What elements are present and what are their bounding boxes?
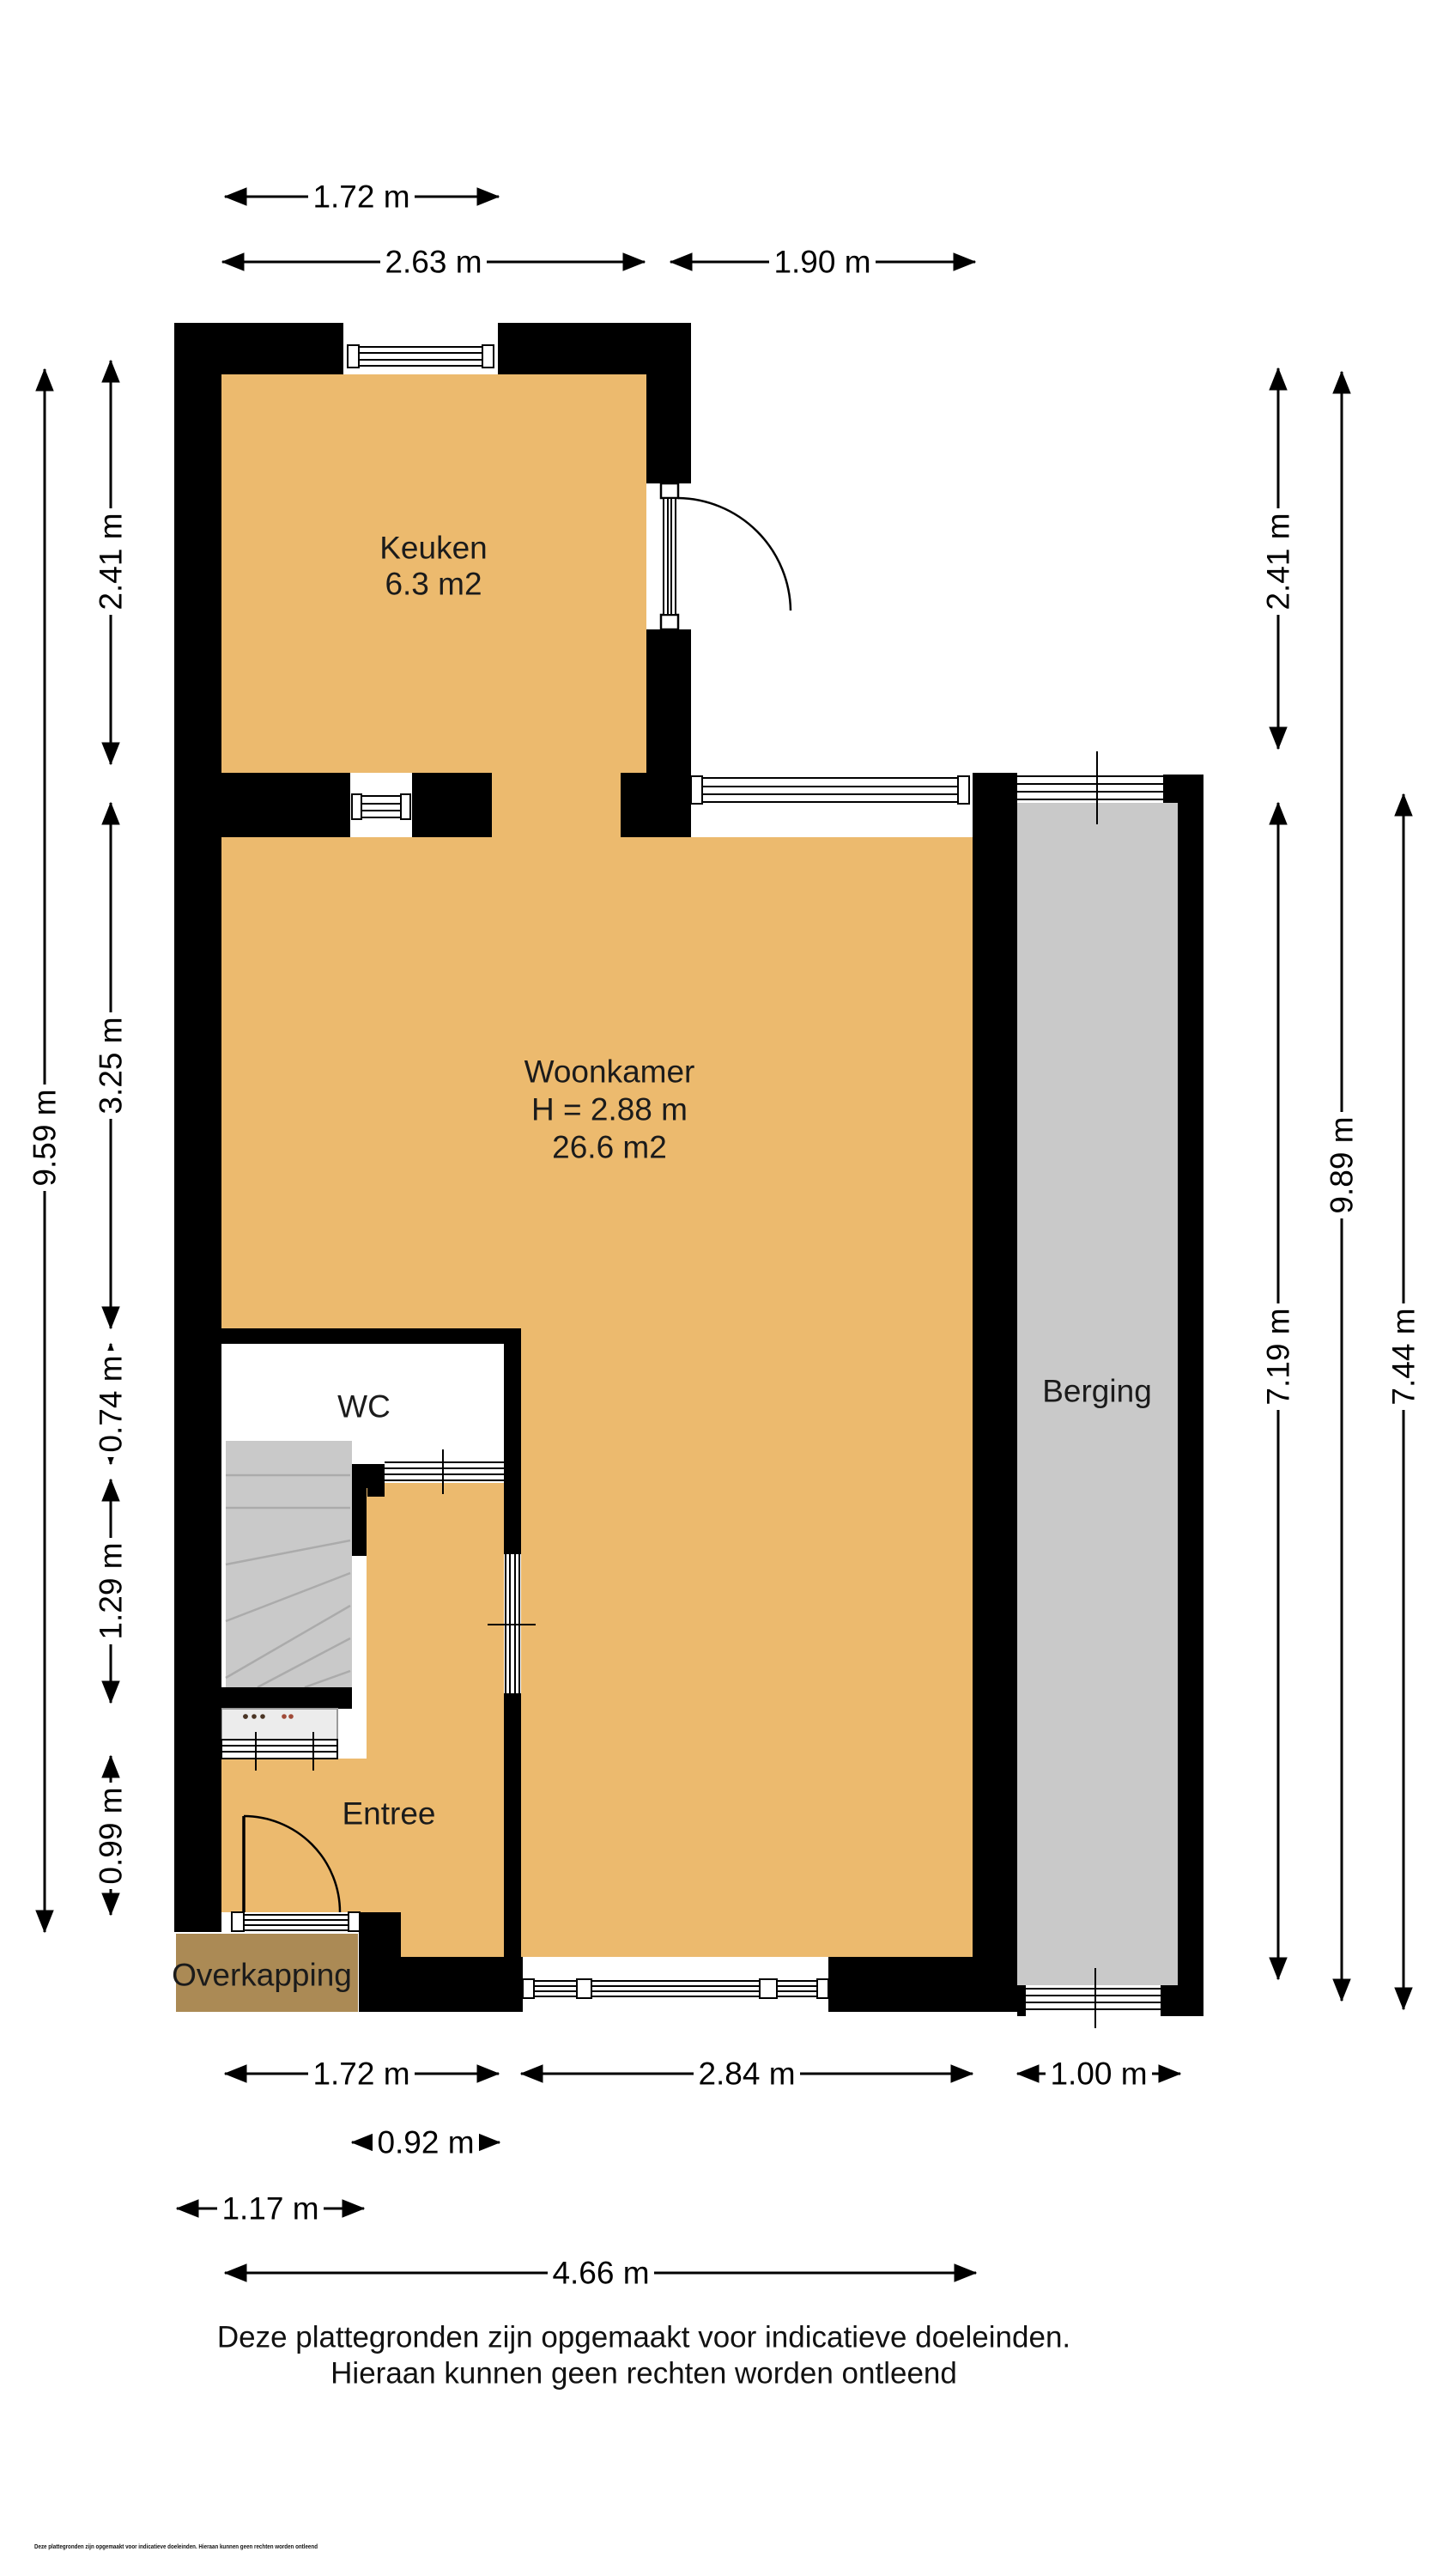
divider-window	[350, 773, 412, 837]
dim-left-total: 9.59 m	[27, 369, 63, 1932]
svg-text:7.44 m: 7.44 m	[1386, 1308, 1422, 1405]
keuken-door-swing-arc	[678, 498, 791, 611]
wall-top-left	[174, 323, 343, 374]
floorplan-svg: Keuken 6.3 m2 Woonkamer H = 2.88 m 26.6 …	[0, 0, 1449, 2576]
berging-label: Berging	[1042, 1374, 1152, 1409]
woonkamer-label: Woonkamer	[524, 1054, 695, 1090]
wall-woonkamer-berging	[973, 773, 1017, 2012]
wall-berging-right	[1178, 775, 1203, 2016]
dim-top-2: 2.63 m	[222, 244, 645, 280]
woonkamer-floor-lower	[521, 1328, 973, 1957]
svg-text:0.92 m: 0.92 m	[377, 2125, 474, 2160]
svg-text:3.25 m: 3.25 m	[94, 1017, 129, 1114]
disclaimer-line2: Hieraan kunnen geen rechten worden ontle…	[330, 2357, 957, 2391]
woonkamer-bottom-window	[523, 1957, 828, 2012]
dim-right-1: 2.41 m	[1260, 368, 1296, 749]
svg-text:0.74 m: 0.74 m	[94, 1355, 129, 1452]
svg-text:1.29 m: 1.29 m	[94, 1542, 129, 1639]
disclaimer-line1: Deze plattegronden zijn opgemaakt voor i…	[217, 2321, 1070, 2354]
wall-stairs-right	[352, 1464, 367, 1556]
svg-text:2.41 m: 2.41 m	[1261, 513, 1296, 610]
dim-top-3: 1.90 m	[670, 244, 975, 280]
keuken-label: Keuken	[379, 531, 488, 566]
dim-bottom-3: 1.00 m	[1017, 2056, 1180, 2092]
wall-entree-pillar	[359, 1912, 401, 2012]
svg-text:7.19 m: 7.19 m	[1261, 1308, 1296, 1405]
svg-text:1.17 m: 1.17 m	[221, 2191, 318, 2227]
wall-divider-corner	[621, 773, 691, 837]
wc-label: WC	[337, 1389, 391, 1425]
svg-text:9.89 m: 9.89 m	[1325, 1116, 1360, 1213]
wall-divider-right	[412, 773, 492, 837]
woonkamer-height-label: H = 2.88 m	[531, 1092, 688, 1127]
keuken-area-label: 6.3 m2	[385, 567, 482, 602]
wall-berging-bottomcorner-right	[1161, 1985, 1178, 2016]
dim-right-outer: 7.44 m	[1385, 794, 1422, 2009]
dim-top-1: 1.72 m	[225, 179, 499, 215]
svg-text:4.66 m: 4.66 m	[552, 2256, 649, 2291]
dim-bottom-4: 0.92 m	[352, 2124, 500, 2160]
woonkamer-top-window	[691, 773, 973, 820]
dim-right-total: 9.89 m	[1324, 372, 1360, 2001]
dim-bottom-6: 4.66 m	[225, 2255, 976, 2291]
dim-left-5: 0.99 m	[93, 1756, 129, 1915]
wall-exterior-left	[174, 323, 221, 1932]
hal-floor	[367, 1483, 504, 1912]
wall-keuken-right-upper	[646, 323, 691, 483]
entree-floor-step	[401, 1912, 504, 1960]
wall-keuken-right-lower	[646, 629, 691, 773]
floorplan-page: Keuken 6.3 m2 Woonkamer H = 2.88 m 26.6 …	[0, 0, 1449, 2576]
wall-bottom-right	[828, 1957, 973, 2012]
woonkamer-area-label: 26.6 m2	[552, 1130, 667, 1165]
svg-text:0.99 m: 0.99 m	[94, 1787, 129, 1884]
dim-left-3: 0.74 m	[93, 1344, 129, 1464]
dim-right-2: 7.19 m	[1260, 803, 1296, 1979]
overkapping-label: Overkapping	[172, 1958, 352, 1993]
wall-hal-upper	[504, 1328, 521, 1554]
svg-text:2.63 m: 2.63 m	[385, 245, 482, 280]
stairs	[221, 1441, 352, 1771]
wall-hal-lower	[504, 1693, 521, 1960]
dim-left-2: 3.25 m	[93, 803, 129, 1328]
svg-text:1.90 m: 1.90 m	[773, 245, 870, 280]
wall-bottom-left	[401, 1957, 523, 2012]
dim-bottom-1: 1.72 m	[225, 2056, 499, 2092]
dim-bottom-5: 1.17 m	[177, 2190, 364, 2227]
keuken-passage-floor	[492, 773, 621, 837]
svg-text:1.72 m: 1.72 m	[312, 2057, 409, 2092]
fine-print: Deze plattegronden zijn opgemaakt voor i…	[34, 2543, 318, 2550]
dim-left-1: 2.41 m	[93, 361, 129, 764]
keuken-window	[343, 323, 498, 374]
stairs-base-wall	[221, 1687, 352, 1709]
keuken-door	[646, 483, 791, 629]
svg-text:1.72 m: 1.72 m	[312, 179, 409, 215]
entree-label: Entree	[342, 1796, 435, 1832]
wall-wc-corner-step	[367, 1481, 385, 1497]
svg-text:2.41 m: 2.41 m	[94, 513, 129, 610]
dim-left-4: 1.29 m	[93, 1479, 129, 1703]
svg-text:2.84 m: 2.84 m	[698, 2057, 795, 2092]
dim-bottom-2: 2.84 m	[521, 2056, 973, 2092]
wall-berging-bottomcorner-left	[1017, 1985, 1026, 2016]
svg-text:9.59 m: 9.59 m	[27, 1089, 63, 1186]
svg-text:1.00 m: 1.00 m	[1050, 2057, 1147, 2092]
wall-wc-top	[216, 1328, 518, 1344]
stairs-body	[226, 1441, 352, 1687]
wall-divider-left	[221, 773, 350, 837]
